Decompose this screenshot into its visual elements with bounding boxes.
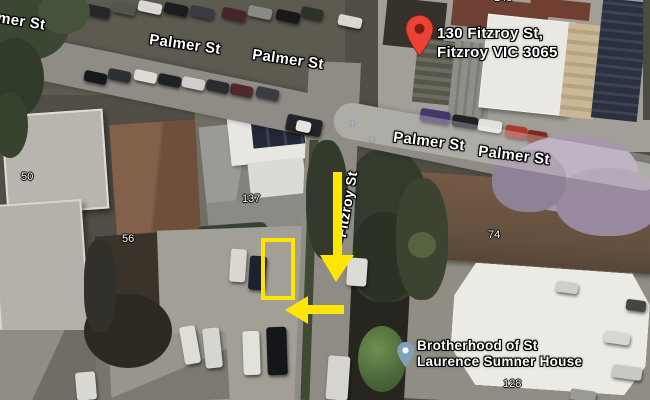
poi-label[interactable]: Brotherhood of St Laurence Sumner House [417,338,582,370]
poi-label-line1: Brotherhood of St [417,338,582,354]
destination-pin-icon[interactable] [406,15,433,56]
satellite-map[interactable]: + + mer St Palmer St Palmer St Palmer St… [0,0,650,400]
tree-mid-left [84,240,116,332]
ne-right-edge-roof [643,0,650,120]
destination-address-label: 130 Fitzroy St, Fitzroy VIC 3065 [437,24,558,62]
car [242,331,261,376]
building-50-roof-lower [0,199,91,339]
parking-spot-highlight-rectangle [261,238,295,300]
poi-pin-icon[interactable] [397,342,414,367]
parcel-number-137: 137 [242,194,260,206]
car [346,257,368,286]
parcel-number-50: 50 [21,172,33,184]
destination-address-line2: Fitzroy VIC 3065 [437,43,558,62]
car [325,355,350,400]
car [229,248,247,282]
parcel-number-148: 148 [494,0,512,5]
destination-address-line1: 130 Fitzroy St, [437,24,558,43]
parcel-number-128: 128 [503,379,521,391]
white-van [75,371,97,400]
car [266,327,288,376]
parcel-number-74: 74 [488,230,500,242]
road-plus-marker: + [349,118,355,130]
poi-label-line2: Laurence Sumner House [417,354,582,370]
road-plus-marker: + [369,134,375,146]
building-rust-roof [109,119,205,237]
parcel-number-56: 56 [122,234,134,246]
tree-small-bright [408,232,436,258]
